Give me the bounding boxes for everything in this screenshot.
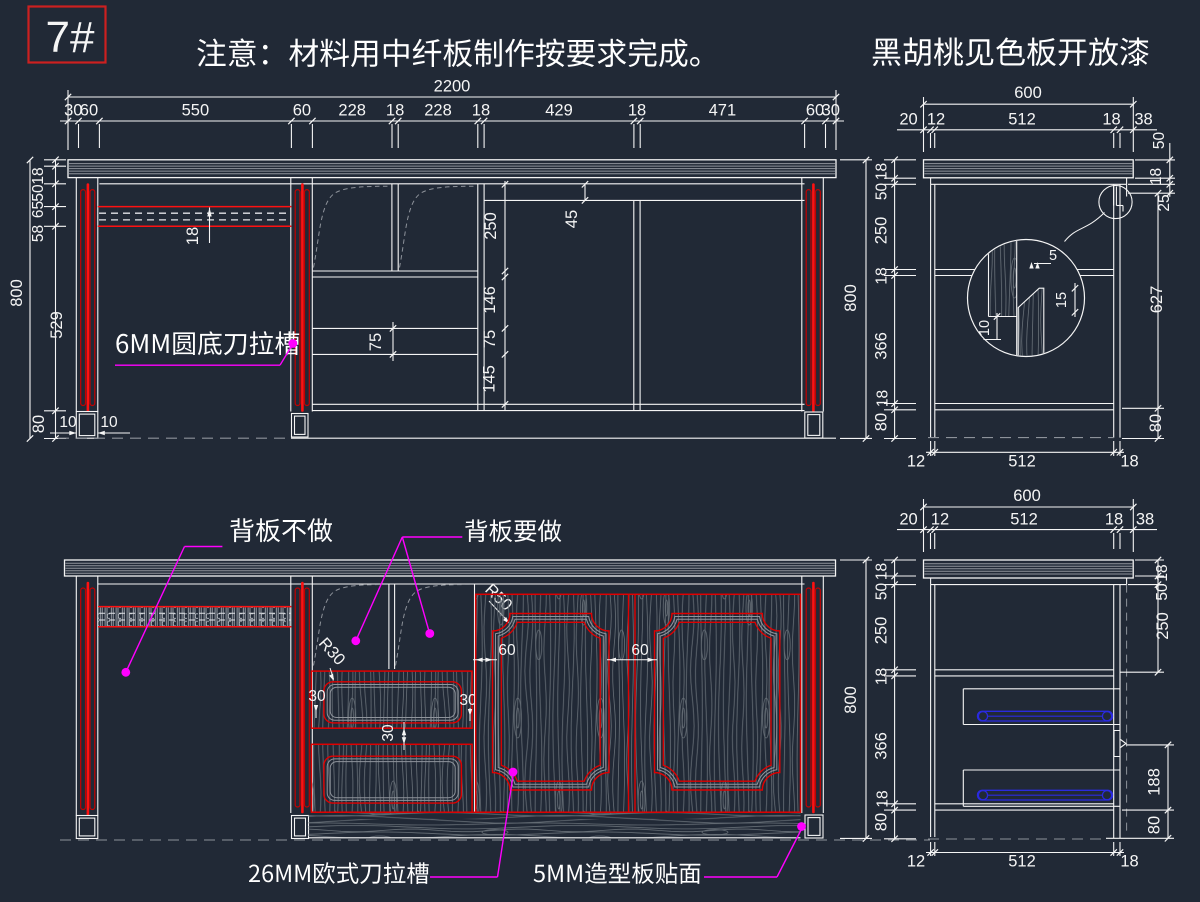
svg-text:18: 18 xyxy=(875,390,892,407)
svg-text:18: 18 xyxy=(1148,168,1165,185)
svg-text:18: 18 xyxy=(874,163,891,180)
svg-text:366: 366 xyxy=(873,732,891,760)
svg-text:471: 471 xyxy=(709,102,737,120)
svg-text:50: 50 xyxy=(1151,132,1168,150)
svg-text:12: 12 xyxy=(907,453,925,471)
svg-text:18: 18 xyxy=(30,167,47,184)
svg-text:18: 18 xyxy=(1105,511,1123,529)
svg-text:250: 250 xyxy=(482,212,500,240)
svg-text:10: 10 xyxy=(100,414,118,431)
svg-text:18: 18 xyxy=(1120,853,1138,871)
svg-text:529: 529 xyxy=(48,311,66,339)
svg-text:75: 75 xyxy=(481,330,499,348)
svg-text:2200: 2200 xyxy=(434,78,471,96)
svg-text:250: 250 xyxy=(873,217,891,245)
svg-text:50: 50 xyxy=(30,184,47,202)
svg-text:50: 50 xyxy=(874,183,891,201)
svg-text:12: 12 xyxy=(931,511,949,529)
svg-text:15: 15 xyxy=(1054,292,1070,308)
svg-text:12: 12 xyxy=(927,111,945,129)
svg-text:627: 627 xyxy=(1148,286,1166,314)
svg-text:20: 20 xyxy=(899,511,917,529)
svg-text:146: 146 xyxy=(481,286,499,314)
svg-text:800: 800 xyxy=(842,686,860,714)
svg-text:18: 18 xyxy=(874,563,891,580)
svg-text:30: 30 xyxy=(380,724,397,742)
svg-text:550: 550 xyxy=(182,102,210,120)
svg-text:25: 25 xyxy=(1156,194,1173,211)
svg-text:800: 800 xyxy=(842,284,860,312)
svg-text:80: 80 xyxy=(1147,414,1165,432)
svg-text:512: 512 xyxy=(1008,111,1036,129)
svg-text:65: 65 xyxy=(30,201,47,218)
svg-text:50: 50 xyxy=(874,583,891,601)
svg-text:18: 18 xyxy=(874,267,891,284)
svg-text:18: 18 xyxy=(472,102,490,120)
svg-text:188: 188 xyxy=(1146,768,1164,796)
svg-text:18: 18 xyxy=(874,668,891,685)
svg-text:20: 20 xyxy=(899,111,917,129)
svg-text:145: 145 xyxy=(481,365,499,393)
svg-text:60: 60 xyxy=(631,642,649,659)
svg-text:38: 38 xyxy=(1136,511,1154,529)
svg-text:366: 366 xyxy=(873,332,891,360)
svg-text:38: 38 xyxy=(1134,111,1152,129)
svg-text:60: 60 xyxy=(293,102,311,120)
svg-text:75: 75 xyxy=(367,333,385,351)
svg-text:60: 60 xyxy=(498,642,516,659)
svg-text:600: 600 xyxy=(1013,487,1041,505)
svg-text:600: 600 xyxy=(1014,84,1042,102)
svg-text:12: 12 xyxy=(907,853,925,871)
svg-text:5: 5 xyxy=(1049,248,1057,264)
svg-text:228: 228 xyxy=(338,102,366,120)
svg-text:228: 228 xyxy=(424,102,452,120)
svg-text:80: 80 xyxy=(1146,816,1164,834)
svg-text:18: 18 xyxy=(184,227,202,245)
svg-text:18: 18 xyxy=(1120,453,1138,471)
svg-text:80: 80 xyxy=(873,813,891,831)
svg-text:7#: 7# xyxy=(46,13,95,62)
svg-text:58: 58 xyxy=(30,225,47,242)
svg-text:30: 30 xyxy=(459,692,477,709)
svg-text:512: 512 xyxy=(1010,511,1038,529)
svg-text:10: 10 xyxy=(59,414,77,431)
svg-text:10: 10 xyxy=(977,320,993,336)
svg-text:18: 18 xyxy=(628,102,646,120)
svg-text:60: 60 xyxy=(80,102,98,120)
svg-text:512: 512 xyxy=(1008,853,1036,871)
svg-text:250: 250 xyxy=(873,617,891,645)
svg-text:50: 50 xyxy=(1154,583,1171,601)
svg-text:250: 250 xyxy=(1154,612,1172,640)
svg-text:30: 30 xyxy=(308,688,326,705)
svg-text:800: 800 xyxy=(8,279,26,307)
svg-text:45: 45 xyxy=(563,210,581,228)
svg-text:80: 80 xyxy=(30,415,48,433)
svg-text:80: 80 xyxy=(873,413,891,431)
svg-text:18: 18 xyxy=(386,102,404,120)
svg-text:18: 18 xyxy=(1154,564,1171,581)
svg-text:429: 429 xyxy=(545,102,573,120)
svg-text:30: 30 xyxy=(822,102,840,120)
svg-text:18: 18 xyxy=(1102,111,1120,129)
svg-text:18: 18 xyxy=(875,790,892,807)
svg-text:512: 512 xyxy=(1008,453,1036,471)
